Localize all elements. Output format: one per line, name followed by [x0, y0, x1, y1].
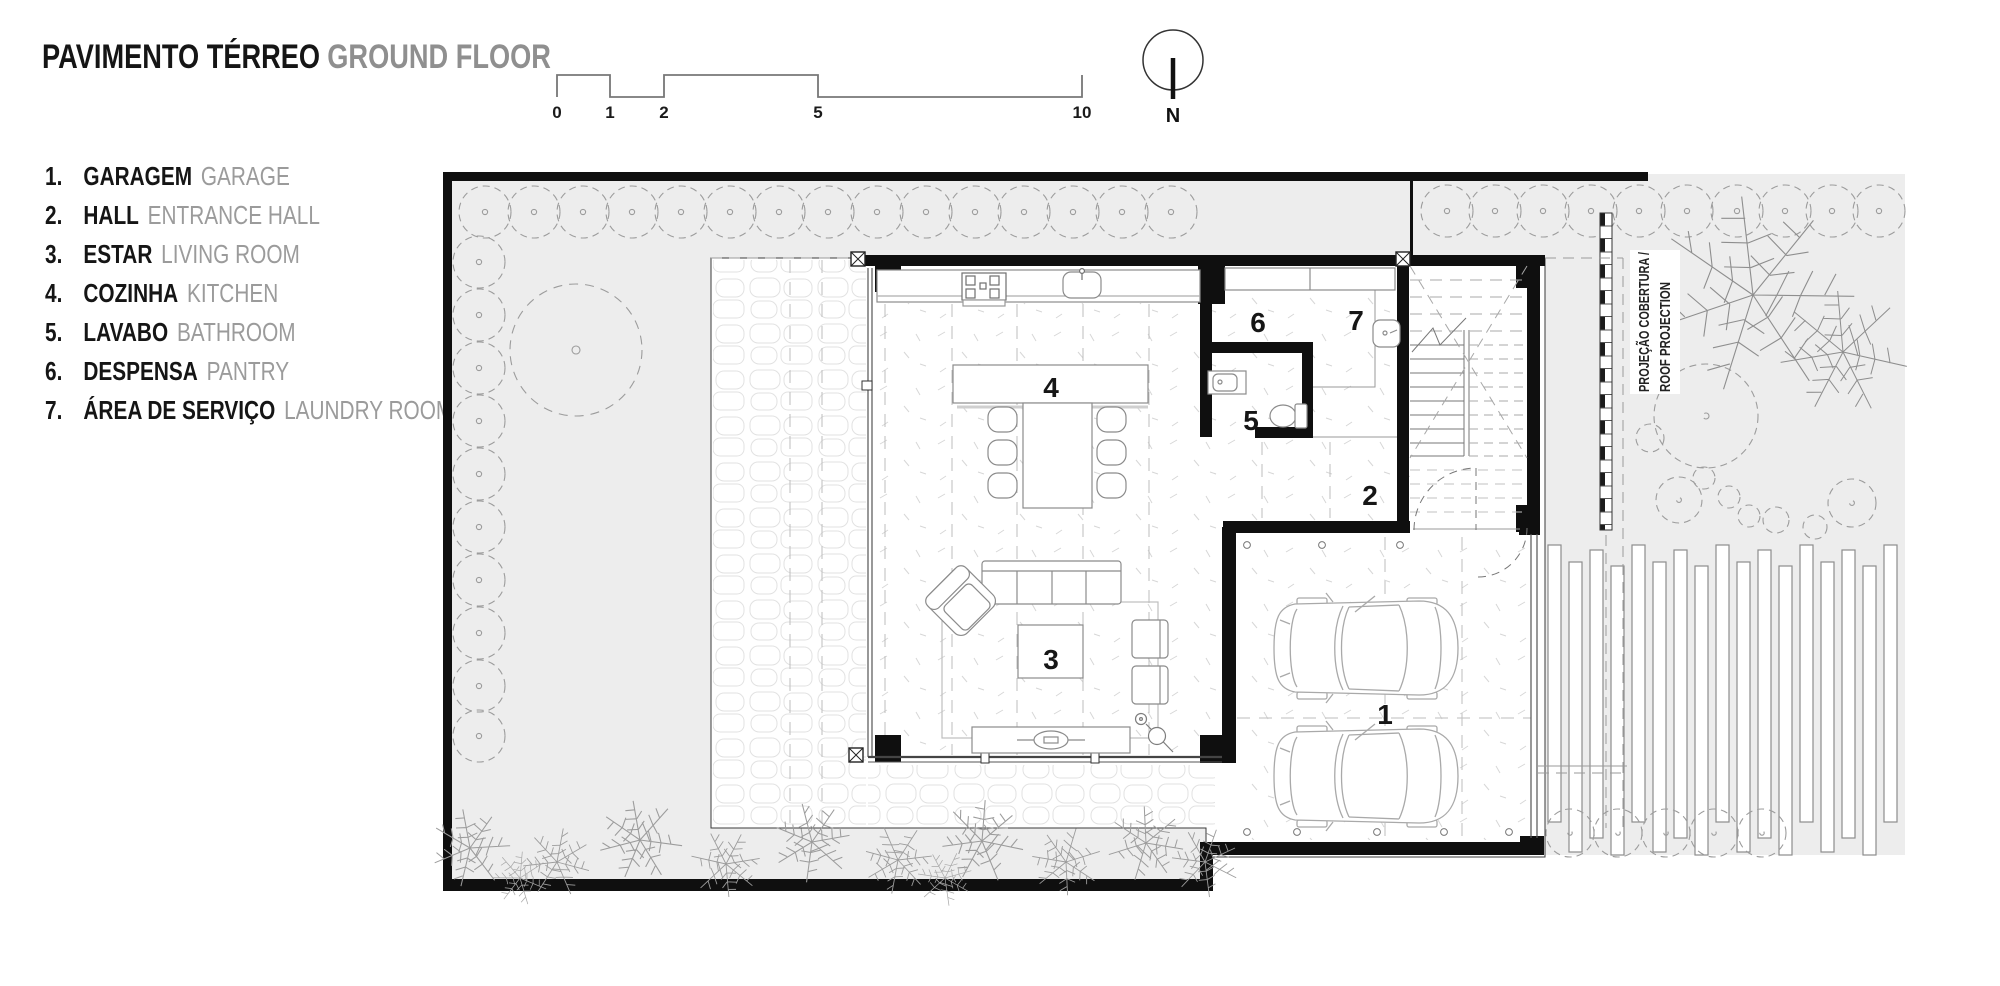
bathroom-sink-icon — [1208, 371, 1246, 394]
kitchen-sink-icon — [1063, 269, 1101, 298]
dining-table-set — [988, 403, 1126, 508]
toilet-icon — [1270, 404, 1307, 428]
scale-tick-0: 0 — [552, 103, 561, 122]
floor-plan-sheet: PAVIMENTO TÉRREOGROUND FLOOR 1. GARAGEM … — [0, 0, 2000, 986]
sofa — [982, 561, 1121, 604]
north-label: N — [1166, 105, 1180, 127]
tv-console — [972, 727, 1130, 753]
laundry-sink-icon — [1373, 320, 1400, 347]
room-label-pantry: 6 — [1250, 307, 1266, 338]
scale-tick-10: 10 — [1073, 103, 1092, 122]
roof-projection-label: PROJEÇÃO COBERTURA / ROOF PROJECTION — [1630, 250, 1680, 394]
roof-projection-line1: PROJEÇÃO COBERTURA / — [1635, 251, 1653, 392]
room-label-laundry: 7 — [1348, 305, 1364, 336]
slatted-fence — [1600, 213, 1612, 530]
roof-projection-line2: ROOF PROJECTION — [1657, 282, 1674, 392]
wood-deck-slats — [1548, 545, 1897, 855]
room-label-bathroom: 5 — [1243, 405, 1259, 436]
room-label-hall: 2 — [1362, 480, 1378, 511]
room-label-garage: 1 — [1377, 699, 1393, 730]
floor-plan-drawing: 1 2 3 4 5 6 7 PROJEÇÃO COBERTURA / ROOF … — [0, 0, 2000, 986]
stone-path-bottom — [868, 765, 1215, 826]
scale-tick-5: 5 — [813, 103, 822, 122]
room-label-living: 3 — [1043, 644, 1059, 675]
north-arrow: N — [1143, 30, 1203, 127]
room-label-kitchen: 4 — [1043, 372, 1059, 403]
car-1 — [1274, 593, 1458, 703]
scale-tick-1: 1 — [605, 103, 614, 122]
scale-tick-2: 2 — [659, 103, 668, 122]
stone-path-left — [713, 260, 866, 826]
scale-bar: 0 1 2 5 10 — [552, 75, 1091, 122]
car-2 — [1274, 721, 1458, 831]
stove-icon — [962, 273, 1006, 306]
